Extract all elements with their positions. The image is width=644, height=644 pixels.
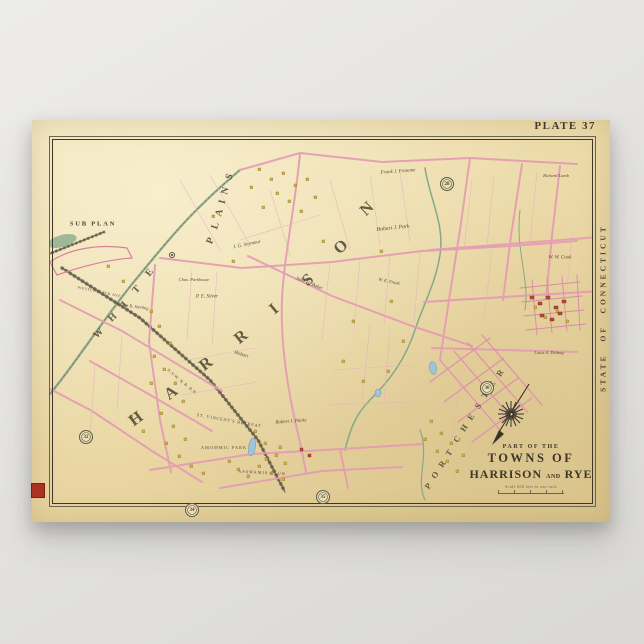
title-kicker: PART OF THE [461,444,601,450]
compass-rose-icon [487,372,533,450]
map-title-cartouche: PART OF THE TOWNS OF HARRISON AND RYE Sc… [461,444,601,494]
plate-number-label: PLATE 37 [534,120,596,132]
product-backdrop: PLATE 37 STATE OF CONNECTICUT SUB PLAN W… [0,0,644,644]
map-poster: PLATE 37 STATE OF CONNECTICUT SUB PLAN W… [32,120,610,522]
title-harrison: HARRISON [469,467,542,481]
state-of-connecticut-label: STATE OF CONNECTICUT [599,192,608,424]
title-towns-of: TOWNS OF [461,451,601,466]
title-scale-note: Scale 600 feet to one inch [461,484,601,489]
title-and: AND [546,474,561,480]
sub-plan-label: SUB PLAN [70,221,116,228]
title-scale-bar [498,490,564,494]
title-rye: RYE [565,467,593,481]
title-harrison-and-rye: HARRISON AND RYE [461,467,601,482]
edge-mark [31,483,45,498]
